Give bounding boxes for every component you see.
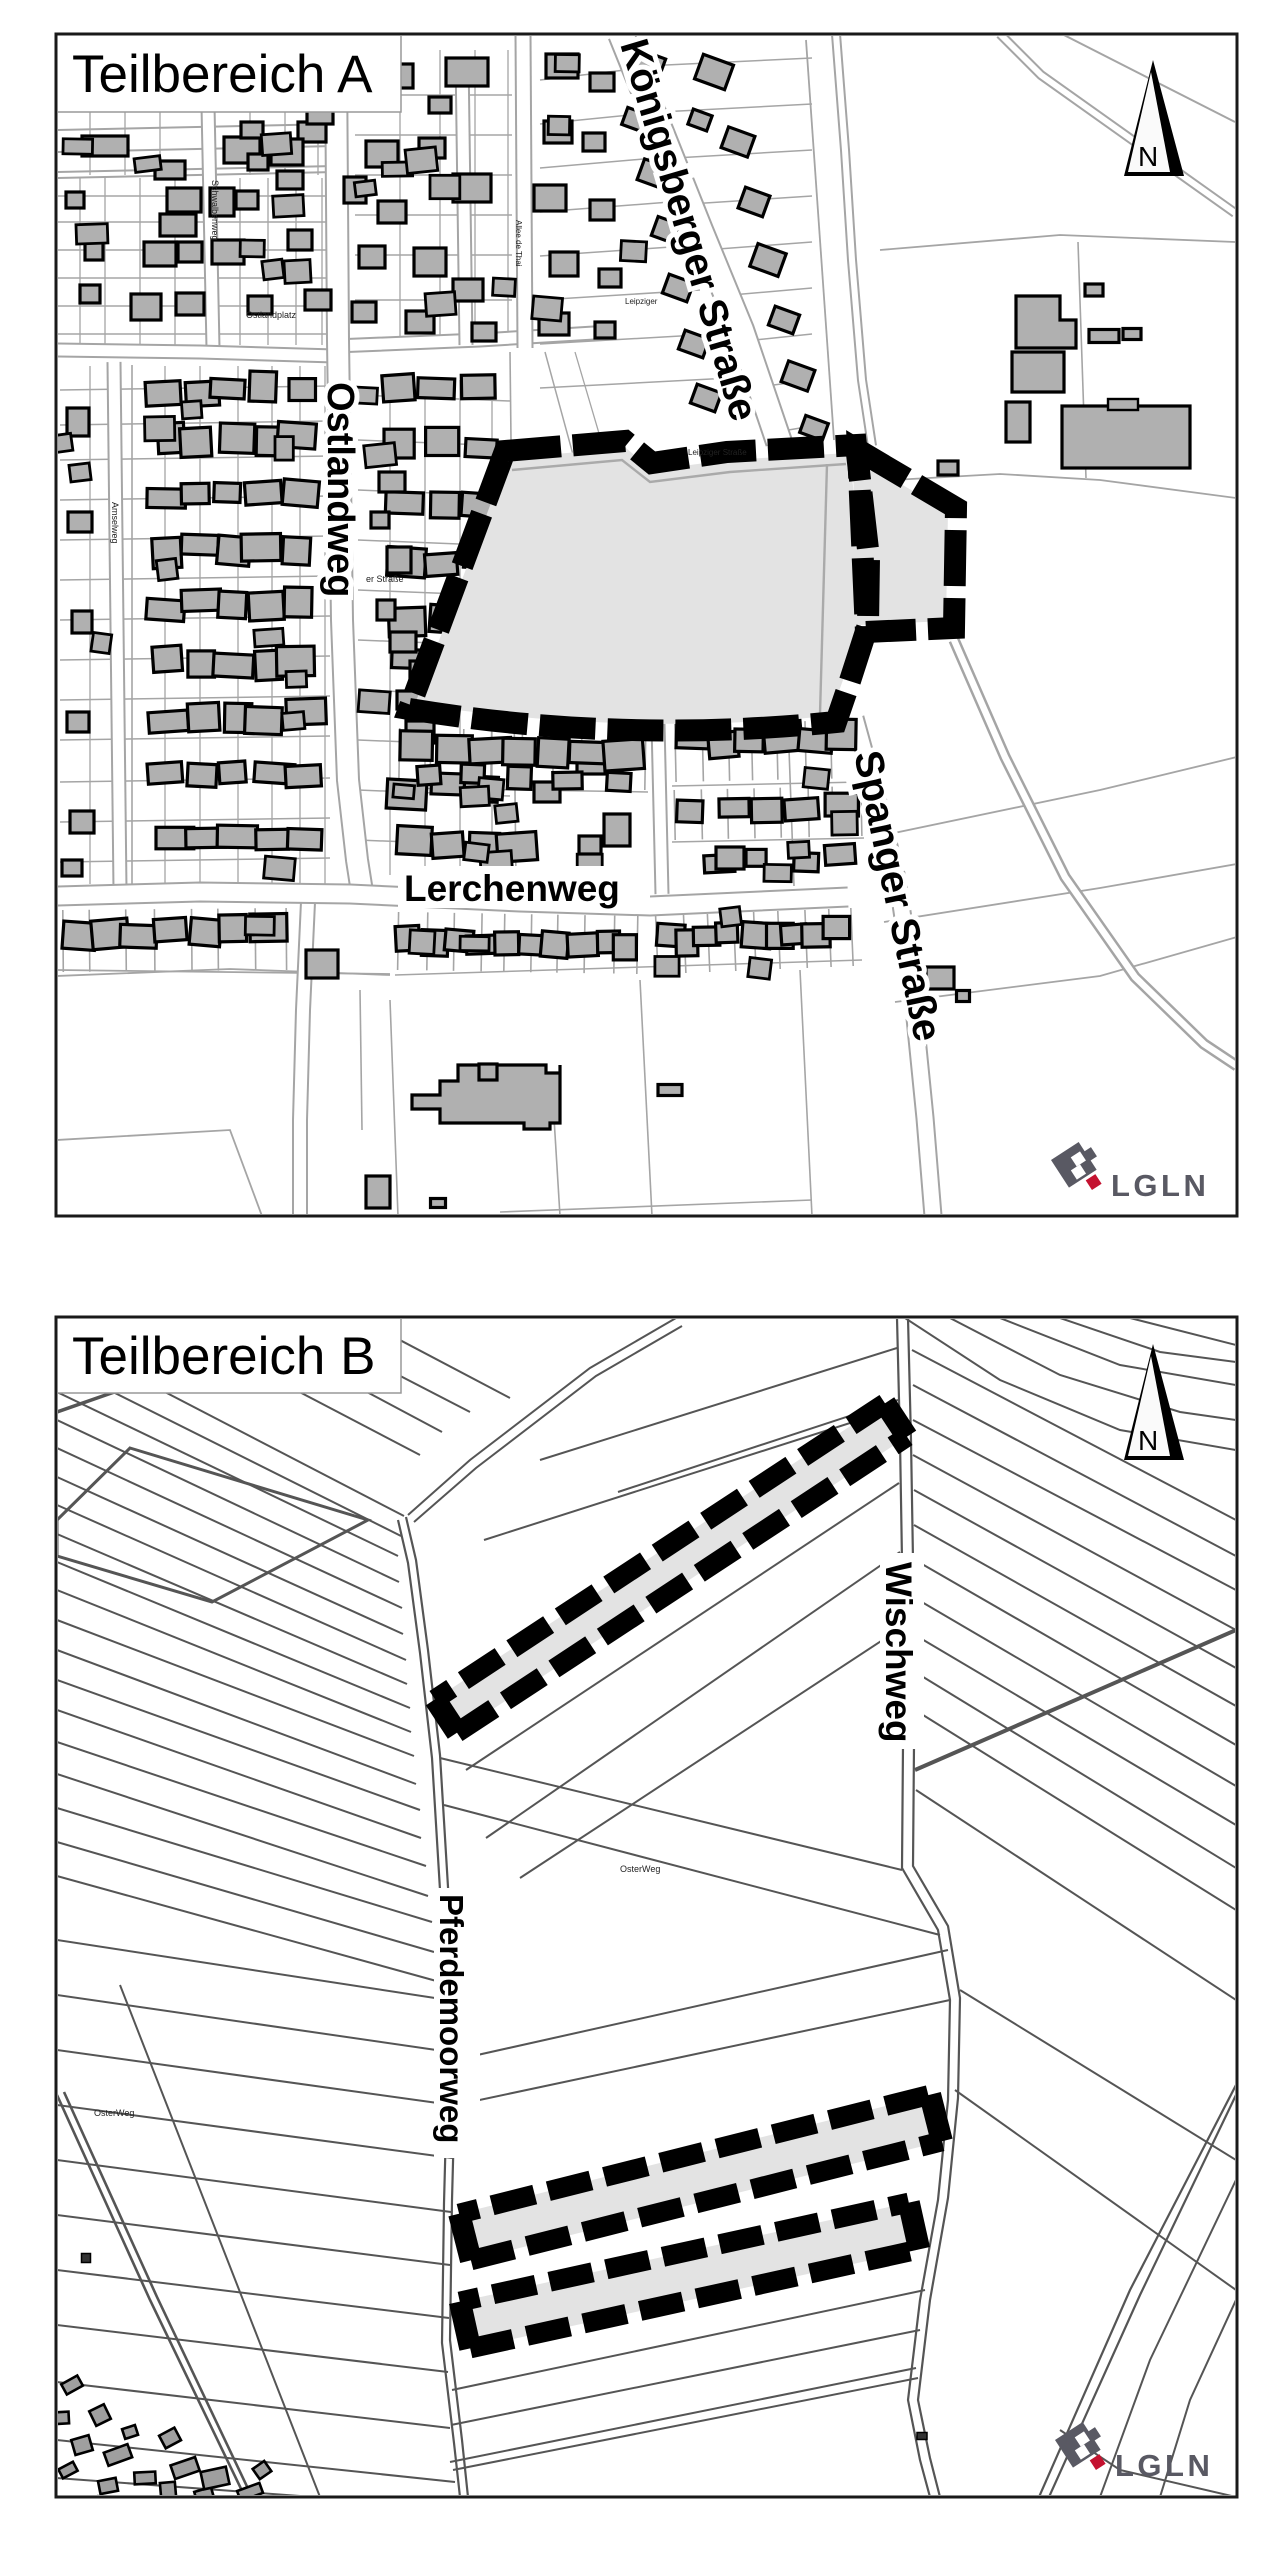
- svg-text:Teilbereich B: Teilbereich B: [72, 1327, 375, 1386]
- svg-text:LGLN: LGLN: [1111, 1168, 1209, 1203]
- svg-text:LGLN: LGLN: [1115, 2448, 1213, 2483]
- svg-text:Pferdemoorweg: Pferdemoorweg: [433, 1894, 470, 2143]
- svg-text:Teilbereich A: Teilbereich A: [72, 45, 373, 104]
- svg-text:Wischweg: Wischweg: [878, 1562, 919, 1743]
- svg-text:Ostlandweg: Ostlandweg: [319, 382, 361, 597]
- svg-text:Leipziger Straße: Leipziger Straße: [688, 448, 747, 457]
- svg-text:er Straße: er Straße: [366, 574, 404, 584]
- svg-text:Lerchenweg: Lerchenweg: [404, 868, 620, 909]
- svg-text:Amselweg: Amselweg: [110, 502, 120, 544]
- svg-text:Leipziger: Leipziger: [625, 297, 658, 306]
- svg-text:Allee de Thai: Allee de Thai: [514, 220, 523, 267]
- svg-text:N: N: [1138, 1425, 1158, 1456]
- svg-text:Ostlandplatz: Ostlandplatz: [246, 310, 297, 320]
- svg-text:OsterWeg: OsterWeg: [620, 1864, 660, 1874]
- svg-text:Schwalbenweg: Schwalbenweg: [210, 180, 220, 241]
- svg-text:OsterWeg: OsterWeg: [94, 2108, 134, 2118]
- svg-text:N: N: [1138, 141, 1158, 172]
